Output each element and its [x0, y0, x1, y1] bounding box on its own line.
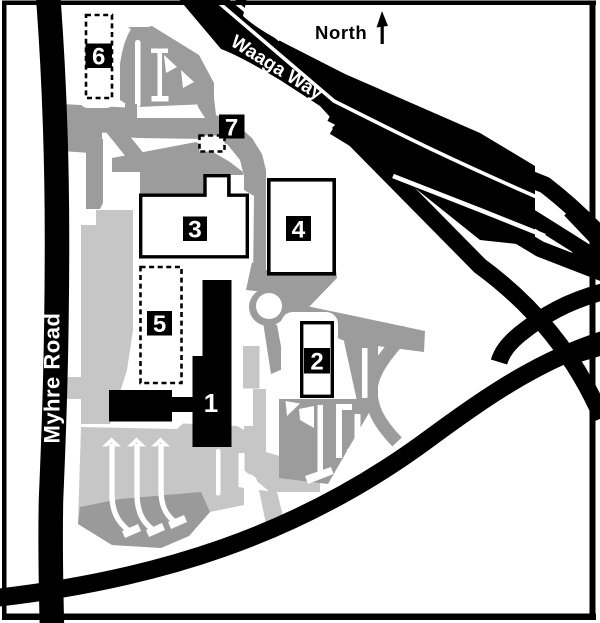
svg-text:6: 6: [92, 44, 105, 71]
svg-text:7: 7: [225, 115, 238, 142]
svg-text:4: 4: [292, 217, 306, 244]
svg-text:3: 3: [188, 217, 202, 244]
svg-text:5: 5: [153, 311, 166, 338]
svg-text:1: 1: [204, 388, 218, 418]
svg-text:Myhre Road: Myhre Road: [40, 313, 65, 444]
svg-text:North: North: [315, 22, 367, 43]
svg-text:2: 2: [310, 349, 323, 376]
